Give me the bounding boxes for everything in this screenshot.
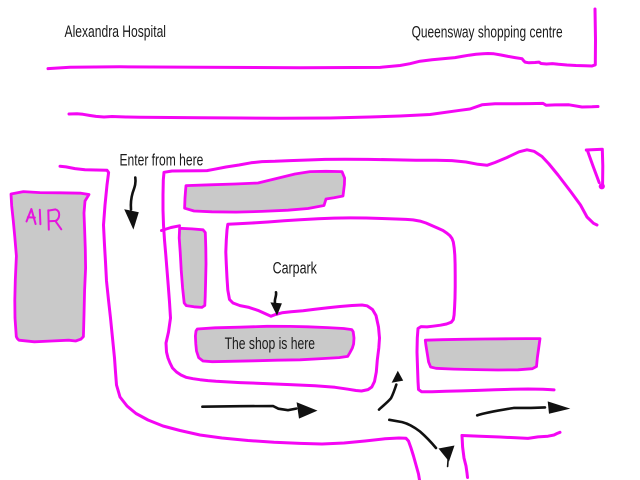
svg-text:The shop is here: The shop is here [225,335,315,353]
svg-text:Queensway shopping centre: Queensway shopping centre [412,24,563,42]
svg-text:Carpark: Carpark [273,260,318,278]
svg-text:Enter from here: Enter from here [120,152,204,170]
svg-text:Alexandra Hospital: Alexandra Hospital [65,24,167,42]
